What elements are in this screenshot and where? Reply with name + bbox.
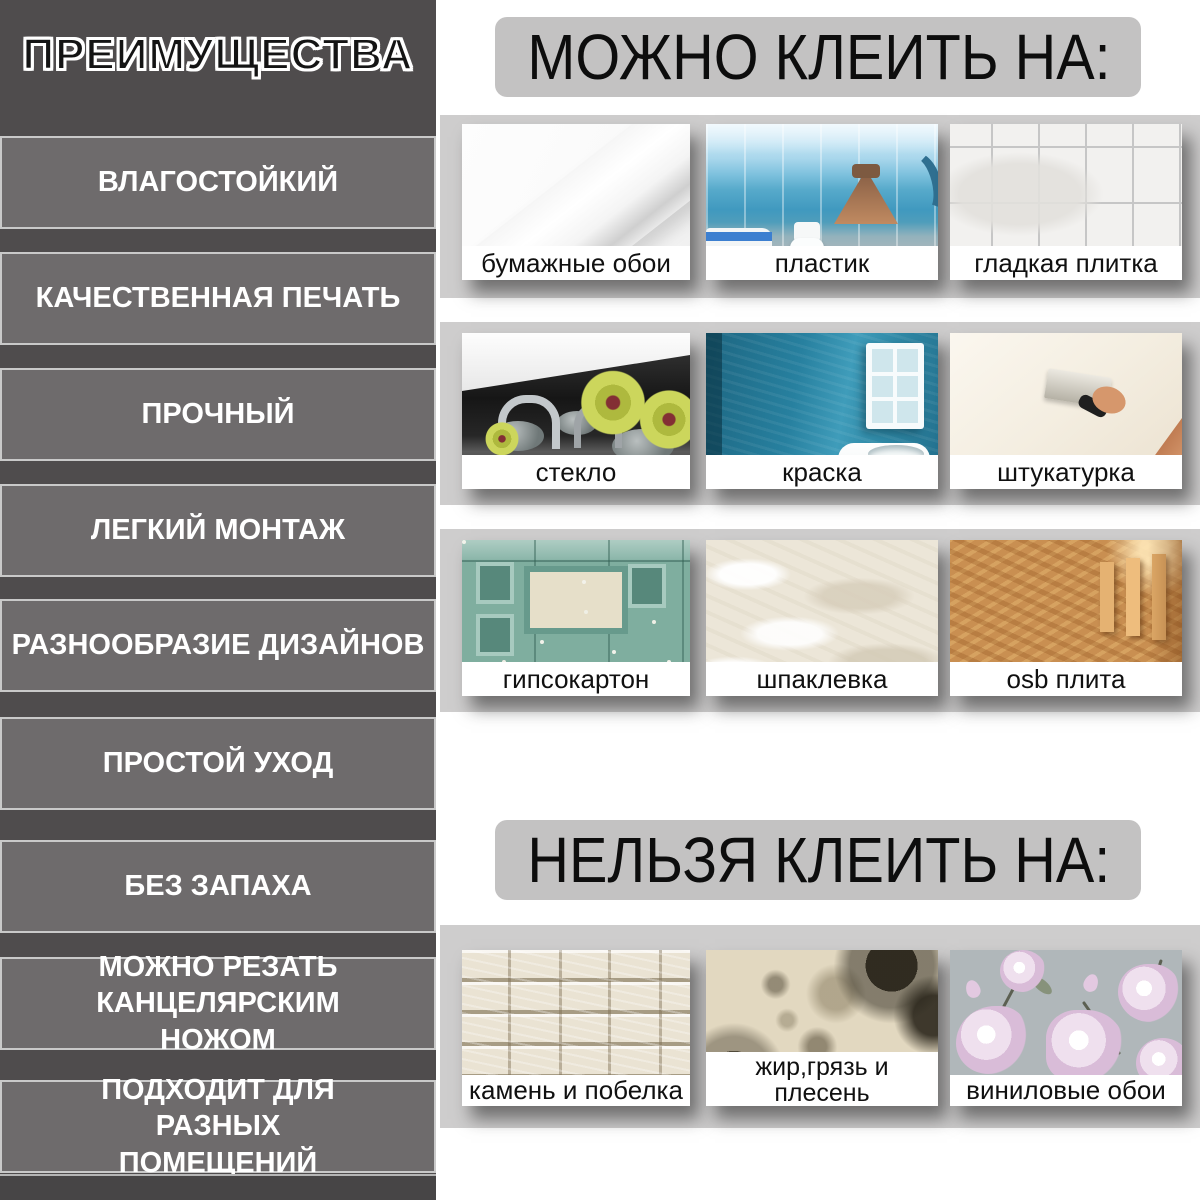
- photo-paper-wallpaper: бумажные обои: [462, 124, 690, 280]
- advantage-item-no-smell: БЕЗ ЗАПАХА: [0, 840, 436, 933]
- photo-glass: стекло: [462, 333, 690, 489]
- photo-putty: шпаклевка: [706, 540, 938, 696]
- cannot-glue-header: НЕЛЬЗЯ КЛЕИТЬ НА:: [495, 820, 1141, 900]
- photo-caption: стекло: [462, 455, 690, 489]
- photo-caption: гладкая плитка: [950, 246, 1182, 280]
- photo-caption: osb плита: [950, 662, 1182, 696]
- photo-caption: бумажные обои: [462, 246, 690, 280]
- photo-caption: штукатурка: [950, 455, 1182, 489]
- can-glue-header: МОЖНО КЛЕИТЬ НА:: [495, 17, 1141, 97]
- photo-grease-dirt-mold: жир,грязь и плесень: [706, 950, 938, 1106]
- advantage-item-print-quality: КАЧЕСТВЕННАЯ ПЕЧАТЬ: [0, 252, 436, 345]
- niche-shape: [524, 566, 628, 634]
- photo-caption: жир,грязь и плесень: [706, 1052, 938, 1106]
- photo-drywall: гипсокартон: [462, 540, 690, 696]
- photo-caption: камень и побелка: [462, 1075, 690, 1106]
- infographic-page: { "sidebar": { "title": "ПРЕИМУЩЕСТВА", …: [0, 0, 1200, 1200]
- advantage-item-cuttable: МОЖНО РЕЗАТЬ КАНЦЕЛЯРСКИМ НОЖОМ: [0, 957, 436, 1050]
- advantage-item-easy-care: ПРОСТОЙ УХОД: [0, 717, 436, 810]
- photo-plaster: штукатурка: [950, 333, 1182, 489]
- photo-osb: osb плита: [950, 540, 1182, 696]
- photo-stone-whitewash: камень и побелка: [462, 950, 690, 1106]
- photo-smooth-tile: гладкая плитка: [950, 124, 1182, 280]
- photo-vinyl-wallpaper: виниловые обои: [950, 950, 1182, 1106]
- photo-plastic-panels: пластик: [706, 124, 938, 280]
- photo-caption: виниловые обои: [950, 1075, 1182, 1106]
- advantage-item-moisture: ВЛАГОСТОЙКИЙ: [0, 136, 436, 229]
- advantage-item-any-room: ПОДХОДИТ ДЛЯ РАЗНЫХ ПОМЕЩЕНИЙ: [0, 1080, 436, 1173]
- photo-caption: гипсокартон: [462, 662, 690, 696]
- photo-caption: краска: [706, 455, 938, 489]
- advantages-title: ПРЕИМУЩЕСТВА: [0, 30, 436, 80]
- sidebar-footer-strip: [0, 1176, 436, 1200]
- advantages-sidebar: ПРЕИМУЩЕСТВА ВЛАГОСТОЙКИЙ КАЧЕСТВЕННАЯ П…: [0, 0, 436, 1200]
- photo-paint: краска: [706, 333, 938, 489]
- photo-caption: шпаклевка: [706, 662, 938, 696]
- advantage-item-easy-install: ЛЕГКИЙ МОНТАЖ: [0, 484, 436, 577]
- magnolia-flower-shape: [956, 1006, 1028, 1074]
- photo-caption: пластик: [706, 246, 938, 280]
- advantage-item-durable: ПРОЧНЫЙ: [0, 368, 436, 461]
- advantage-item-designs: РАЗНООБРАЗИЕ ДИЗАЙНОВ: [0, 599, 436, 692]
